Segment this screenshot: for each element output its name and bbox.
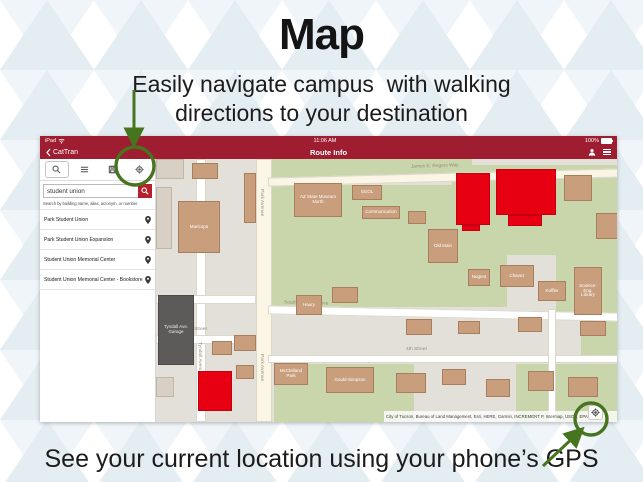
map-building	[596, 213, 617, 239]
map-building: McClelland Park	[274, 363, 308, 385]
map-building	[192, 163, 218, 179]
tab-list[interactable]	[74, 162, 96, 177]
map-building	[156, 377, 174, 397]
status-time: 11:06 AM	[314, 138, 337, 144]
street-label: 4th Street	[406, 347, 427, 352]
map-building: Koffler	[538, 281, 566, 301]
menu-icon[interactable]	[603, 148, 611, 157]
map-building	[496, 169, 556, 215]
search-result-row[interactable]: Park Student Union	[40, 209, 155, 229]
search-result-row[interactable]: Student Union Memorial Center - Bookstor…	[40, 269, 155, 290]
back-button[interactable]: CatTran	[46, 148, 78, 157]
map-pin-icon	[145, 216, 151, 224]
map-building	[580, 321, 606, 336]
slide-footer: See your current location using your pho…	[0, 445, 643, 474]
map-building: GEOL	[352, 185, 382, 200]
search-icon	[141, 187, 149, 195]
map-building	[456, 173, 490, 225]
device-label: iPad	[45, 138, 56, 144]
subtitle-line-2: directions to your destination	[175, 100, 468, 126]
nav-bar: CatTran Route Info	[40, 145, 617, 159]
map-building: Haury	[296, 295, 322, 315]
map-building	[458, 321, 480, 334]
list-icon	[80, 165, 89, 174]
street-label: Park Avenue	[259, 189, 264, 216]
map-building: Old Main	[428, 229, 458, 263]
map-building: Maricopa	[178, 201, 220, 253]
map-building	[564, 175, 592, 201]
search-results: Park Student Union Park Student Union Ex…	[40, 209, 155, 290]
search-result-label: Student Union Memorial Center - Bookstor…	[44, 277, 145, 283]
app-header: iPad 11:06 AM 100% CatTran Route Info	[40, 136, 617, 159]
tab-search[interactable]	[45, 161, 69, 178]
map-building-label: Old Main	[433, 243, 453, 250]
search-button[interactable]	[138, 184, 152, 198]
map-building: Gould-Simpson	[326, 367, 374, 393]
search-panel: Search by building name, alias, acronym,…	[40, 159, 156, 422]
map-building-label: Science-Eng. Library	[575, 283, 601, 300]
map-building	[156, 159, 184, 179]
gps-locate-button[interactable]	[588, 405, 603, 420]
profile-icon[interactable]	[588, 148, 596, 156]
search-hint: Search by building name, alias, acronym,…	[40, 199, 155, 209]
map-building	[212, 341, 232, 355]
map-building-label: Nugent	[471, 274, 488, 281]
map-building: Tyndall Ave. Garage	[158, 295, 194, 365]
app-screenshot: iPad 11:06 AM 100% CatTran Route Info	[40, 136, 617, 422]
search-icon	[52, 165, 61, 174]
locate-icon	[135, 165, 144, 174]
map-building	[528, 371, 554, 391]
map-building-label: McClelland Park	[275, 368, 307, 380]
back-label: CatTran	[53, 149, 78, 156]
map-pin-icon	[145, 256, 151, 264]
tab-locate[interactable]	[128, 162, 150, 177]
panel-tab-bar	[40, 159, 155, 181]
search-result-label: Park Student Union Expansion	[44, 237, 145, 243]
search-result-label: Park Student Union	[44, 217, 145, 223]
map-building	[234, 335, 256, 351]
battery-percent: 100%	[585, 138, 599, 144]
map-building	[156, 187, 172, 249]
map-building	[396, 373, 426, 393]
map-building-label: Communication	[364, 209, 397, 216]
battery-icon	[601, 138, 612, 145]
gps-crosshair-icon	[591, 408, 600, 417]
map-building-label: AZ State Museum North	[295, 194, 341, 206]
map-building	[462, 225, 480, 231]
status-bar: iPad 11:06 AM 100%	[40, 136, 617, 145]
save-icon	[108, 165, 117, 174]
slide-title: Map	[0, 10, 643, 60]
map-building-label: Maricopa	[189, 224, 210, 231]
map-building-label: Koffler	[545, 288, 560, 295]
tab-saved[interactable]	[101, 162, 123, 177]
map-building: AZ State Museum North	[294, 183, 342, 217]
map-building-label: Tyndall Ave. Garage	[159, 324, 193, 336]
chevron-left-icon	[46, 148, 51, 157]
map-road	[268, 355, 617, 363]
map-pin-icon	[145, 276, 151, 284]
map-building	[486, 379, 510, 397]
map-building	[244, 173, 256, 223]
nav-title: Route Info	[40, 148, 617, 157]
subtitle-line-1: Easily navigate campus with walking	[132, 71, 510, 97]
map-building-label: Haury	[302, 302, 316, 309]
search-result-row[interactable]: Park Student Union Expansion	[40, 229, 155, 249]
map-building	[518, 317, 542, 332]
map-building-label: Chavez	[508, 273, 525, 280]
map-building: Communication	[362, 206, 400, 219]
map-building	[442, 369, 466, 385]
map-building	[568, 377, 598, 397]
street-label: Tyndall Avenue	[197, 342, 202, 374]
map-road	[548, 309, 556, 422]
map-building: Nugent	[468, 269, 490, 286]
map-building-label: Gould-Simpson	[333, 377, 366, 384]
map-building	[508, 215, 542, 226]
map-pin-icon	[145, 236, 151, 244]
map-building: Chavez	[500, 265, 534, 287]
street-label: Park Avenue	[259, 354, 264, 381]
map-building: Science-Eng. Library	[574, 267, 602, 315]
map-building	[332, 287, 358, 303]
map-building	[406, 319, 432, 335]
map-building-label: GEOL	[360, 189, 375, 196]
map-canvas[interactable]: City of Tucson, Bureau of Land Managemen…	[156, 159, 617, 422]
search-result-row[interactable]: Student Union Memorial Center	[40, 249, 155, 269]
search-result-label: Student Union Memorial Center	[44, 257, 145, 263]
slide-subtitle: Easily navigate campus with walkingdirec…	[0, 70, 643, 128]
search-input[interactable]	[43, 184, 138, 198]
map-building	[198, 371, 232, 411]
map-attribution: City of Tucson, Bureau of Land Managemen…	[384, 411, 617, 422]
wifi-icon	[58, 138, 65, 144]
map-building	[408, 211, 426, 224]
map-building	[236, 365, 254, 379]
